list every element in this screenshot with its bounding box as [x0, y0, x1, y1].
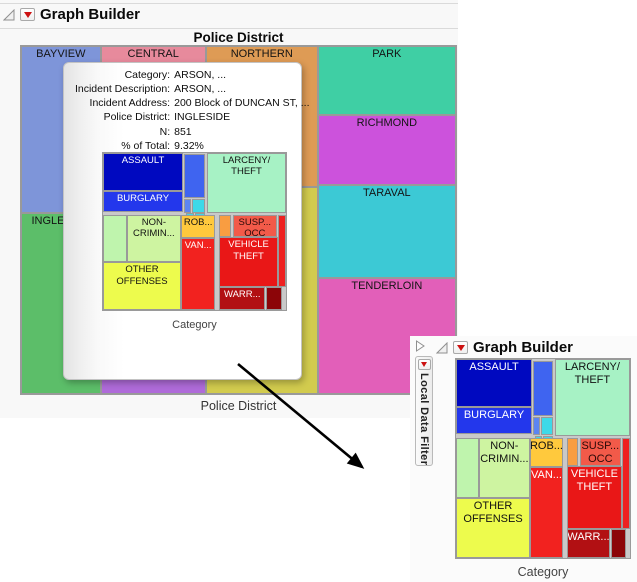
cell-label: SUSP... OCC: [239, 216, 272, 237]
divider: [0, 28, 458, 29]
cell-dark-red: [266, 287, 282, 310]
cell-label: ROB...: [184, 216, 213, 228]
cell-label: BURGLARY: [117, 192, 169, 204]
cell-label: CENTRAL: [128, 47, 179, 61]
tooltip-row-label: Incident Address:: [72, 97, 170, 110]
graph-title: Police District: [20, 30, 457, 45]
cell-robbery[interactable]: ROB...: [530, 438, 563, 467]
cell-non-criminal: NON- CRIMIN...: [127, 215, 181, 262]
cell-label: TENDERLOIN: [351, 279, 422, 293]
cell-vehicle-theft: VEHICLE THEFT: [219, 237, 277, 287]
cell-label: ROB...: [530, 439, 563, 453]
tooltip-axis-label: Category: [102, 319, 287, 331]
cell-mid-small-1[interactable]: [533, 417, 540, 435]
cell-warrants: WARR...: [219, 287, 265, 310]
cell-richmond[interactable]: RICHMOND: [318, 115, 456, 186]
tooltip-row: Police District:INGLESIDE: [72, 111, 295, 124]
cell-label: VEHICLE THEFT: [228, 238, 269, 261]
tooltip-row-value: 9.32%: [174, 140, 295, 153]
disclosure-open-icon[interactable]: [436, 342, 448, 354]
cell-robbery: ROB...: [181, 215, 215, 238]
tooltip-row-label: Police District:: [72, 111, 170, 124]
red-triangle-icon: [457, 345, 465, 351]
filter-red-triangle-button[interactable]: [418, 359, 431, 370]
filter-graph-builder-window: Local Data Filter Graph Builder ASSAULTB…: [410, 336, 637, 582]
red-triangle-menu-button[interactable]: [20, 8, 35, 21]
cell-label: OTHER OFFENSES: [116, 263, 167, 286]
cell-larceny-theft[interactable]: LARCENY/ THEFT: [555, 359, 630, 436]
cell-susp-occ: SUSP... OCC: [233, 215, 277, 237]
cell-assault[interactable]: ASSAULT: [456, 359, 532, 407]
tooltip-row-value: ARSON, ...: [174, 69, 295, 82]
tooltip-row: N:851: [72, 126, 295, 139]
cell-label: ASSAULT: [469, 360, 518, 374]
tooltip-row-label: N:: [72, 126, 170, 139]
cell-other-offenses: OTHER OFFENSES: [103, 262, 181, 310]
hover-tooltip: Category:ARSON, ...Incident Description:…: [63, 62, 302, 380]
category-axis-label: Category: [455, 565, 631, 579]
graph-builder-header: Graph Builder: [3, 6, 140, 23]
tooltip-category-treemap: ASSAULTBURGLARYLARCENY/ THEFTNON- CRIMIN…: [102, 152, 287, 311]
cell-label: OTHER OFFENSES: [463, 499, 522, 526]
red-triangle-icon: [24, 12, 32, 18]
cell-vehicle-theft[interactable]: VEHICLE THEFT: [567, 466, 623, 529]
tooltip-row-label: Category:: [72, 69, 170, 82]
cell-dark-red[interactable]: [611, 529, 626, 558]
window-title: Graph Builder: [40, 6, 140, 23]
cell-label: TARAVAL: [363, 186, 411, 200]
tooltip-row: Incident Address:200 Block of DUNCAN ST,…: [72, 97, 295, 110]
tooltip-row-value: 200 Block of DUNCAN ST, ...: [174, 97, 309, 110]
tooltip-row-label: Incident Description:: [72, 83, 170, 96]
tooltip-row-value: 851: [174, 126, 295, 139]
red-triangle-icon: [421, 362, 427, 367]
cell-label: LARCENY/ THEFT: [565, 360, 620, 387]
local-data-filter-tab[interactable]: Local Data Filter: [415, 356, 433, 466]
cell-label: RICHMOND: [357, 116, 418, 130]
cell-label: VEHICLE THEFT: [571, 467, 618, 494]
cell-label: VAN...: [185, 239, 212, 251]
tooltip-row-value: INGLESIDE: [174, 111, 295, 124]
cell-vandalism: VAN...: [181, 238, 215, 310]
cell-mid-small-1: [184, 199, 191, 213]
cell-other-offenses[interactable]: OTHER OFFENSES: [456, 498, 530, 558]
cell-label: BURGLARY: [464, 408, 524, 422]
cell-vandalism[interactable]: VAN...: [530, 467, 563, 558]
filter-tab-label: Local Data Filter: [418, 373, 430, 465]
x-axis-label: Police District: [20, 399, 457, 413]
cell-label: LARCENY/ THEFT: [223, 154, 271, 177]
cell-taraval[interactable]: TARAVAL: [318, 185, 456, 278]
cell-label: SUSP... OCC: [581, 439, 619, 466]
cell-mid-small-2: [192, 199, 205, 213]
cell-orange-sliver: [219, 215, 231, 237]
tooltip-row: Category:ARSON, ...: [72, 69, 295, 82]
cell-burglary: BURGLARY: [103, 191, 183, 212]
cell-left-green: [103, 215, 127, 262]
cell-susp-occ[interactable]: SUSP... OCC: [580, 438, 622, 466]
cell-burglary[interactable]: BURGLARY: [456, 407, 532, 434]
divider: [0, 3, 458, 4]
cell-mid-blue: [184, 154, 205, 197]
cell-label: NORTHERN: [231, 47, 293, 61]
tooltip-row-value: ARSON, ...: [174, 83, 295, 96]
cell-park[interactable]: PARK: [318, 46, 456, 115]
panel-expand-icon[interactable]: [414, 339, 426, 353]
cell-label: NON- CRIMIN...: [133, 216, 175, 239]
cell-label: WARR...: [224, 288, 261, 300]
cell-left-green[interactable]: [456, 438, 479, 498]
filter-window-title: Graph Builder: [473, 339, 573, 356]
cell-mid-small-2[interactable]: [541, 417, 553, 435]
cell-larceny-theft: LARCENY/ THEFT: [207, 153, 286, 213]
cell-non-criminal[interactable]: NON- CRIMIN...: [479, 438, 531, 498]
tooltip-rows: Category:ARSON, ...Incident Description:…: [72, 69, 295, 153]
tooltip-row: Incident Description:ARSON, ...: [72, 83, 295, 96]
disclosure-open-icon[interactable]: [3, 9, 15, 21]
tooltip-row-label: % of Total:: [72, 140, 170, 153]
cell-label: BAYVIEW: [36, 47, 85, 61]
cell-label: PARK: [372, 47, 401, 61]
cell-red-sliver: [278, 215, 286, 287]
cell-orange-sliver[interactable]: [567, 438, 578, 466]
cell-label: NON- CRIMIN...: [480, 439, 528, 466]
red-triangle-menu-button[interactable]: [453, 341, 468, 354]
filter-window-header: Graph Builder: [436, 339, 573, 356]
cell-warrants[interactable]: WARR...: [567, 529, 611, 558]
cell-red-sliver[interactable]: [622, 438, 630, 530]
cell-mid-blue[interactable]: [533, 361, 553, 416]
category-treemap: ASSAULTBURGLARYLARCENY/ THEFTNON- CRIMIN…: [455, 358, 631, 559]
cell-label: WARR...: [567, 530, 609, 544]
cell-assault: ASSAULT: [103, 153, 183, 191]
page: Graph Builder Police District BAYVIEWING…: [0, 0, 637, 582]
tooltip-row: % of Total:9.32%: [72, 140, 295, 153]
cell-label: ASSAULT: [122, 154, 165, 166]
cell-label: VAN...: [531, 468, 562, 482]
